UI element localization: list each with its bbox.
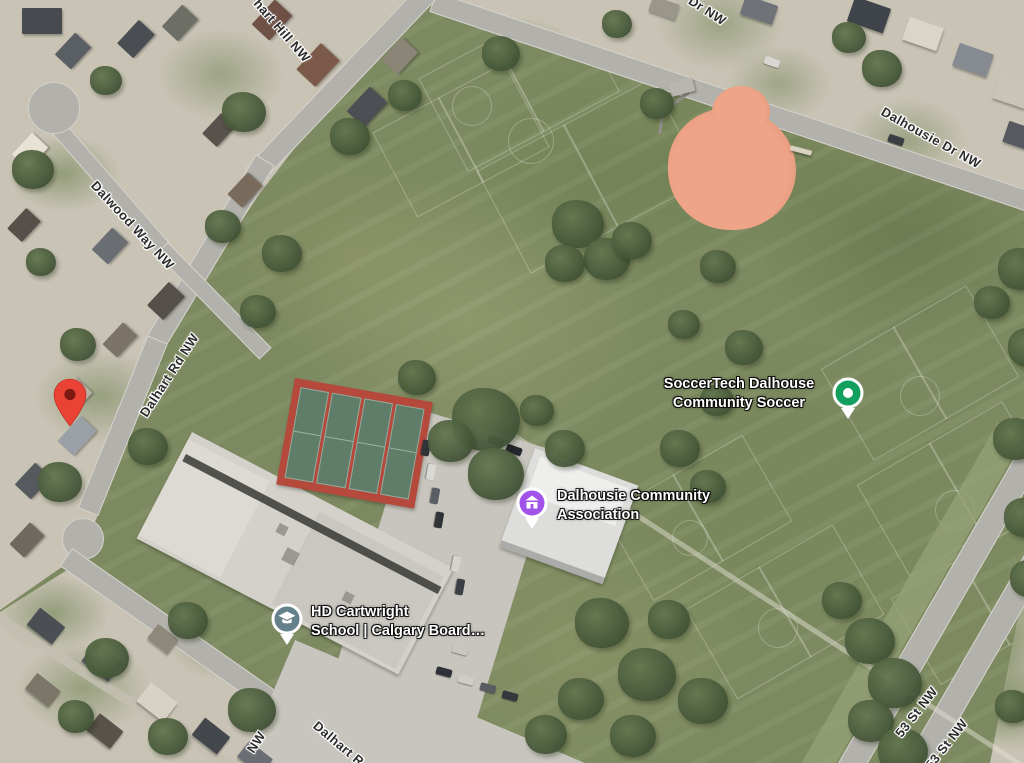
tree-canopy (38, 462, 82, 502)
poi-label-line1: Dalhousie Community (557, 487, 710, 506)
tree-canopy (428, 420, 474, 462)
poi-label-line2: Association (557, 506, 710, 525)
tree-canopy (525, 715, 567, 754)
community-building-pin[interactable] (515, 486, 549, 530)
tree-canopy (58, 700, 94, 733)
tree-canopy (90, 66, 122, 95)
soccer-center-circle (900, 376, 940, 416)
rooftop-unit (275, 523, 288, 536)
tree-canopy (862, 50, 902, 87)
satellite-map[interactable]: Dr NW Dalhousie Dr NW hart Hill NW Dalwo… (0, 0, 1024, 763)
tree-canopy (725, 330, 763, 365)
tree-canopy (602, 10, 632, 38)
red-map-pin[interactable] (53, 378, 87, 428)
tree-canopy (228, 688, 276, 732)
soccer-center-circle (508, 118, 554, 164)
tree-canopy (700, 250, 736, 283)
baseball-infield-top (712, 86, 770, 138)
tree-canopy (993, 418, 1024, 460)
tree-canopy (558, 678, 604, 720)
poi-label-school[interactable]: HD Cartwright School | Calgary Board… (311, 603, 485, 641)
tree-canopy (974, 286, 1010, 319)
tree-canopy (168, 602, 208, 639)
culdesac (28, 82, 80, 134)
house-roof (22, 8, 62, 34)
tree-canopy (60, 328, 96, 361)
tree-canopy (822, 582, 862, 619)
tree-canopy (128, 428, 168, 465)
tree-canopy (545, 245, 585, 282)
tree-canopy (660, 430, 700, 467)
tree-canopy (545, 430, 585, 467)
tree-canopy (832, 22, 866, 53)
tree-canopy (12, 150, 54, 189)
tree-canopy (398, 360, 436, 395)
tree-canopy (482, 36, 520, 71)
tree-canopy (995, 690, 1024, 723)
tree-canopy (668, 310, 700, 339)
tree-canopy (262, 235, 302, 272)
tree-canopy (205, 210, 241, 243)
tree-canopy (148, 718, 188, 755)
tree-canopy (575, 598, 629, 648)
tree-canopy (648, 600, 690, 639)
poi-label-line1: HD Cartwright (311, 603, 485, 622)
tree-canopy (612, 222, 652, 259)
poi-label-line2: School | Calgary Board… (311, 622, 485, 641)
tree-canopy (222, 92, 266, 132)
tree-canopy (618, 648, 676, 701)
soccer-center-circle (452, 86, 492, 126)
tree-canopy (330, 118, 370, 155)
tree-canopy (85, 638, 129, 678)
poi-label-line2: Community Soccer (646, 394, 832, 413)
school-graduation-cap-pin[interactable] (270, 602, 304, 646)
tree-canopy (520, 395, 554, 426)
tree-canopy (678, 678, 728, 724)
tree-canopy (26, 248, 56, 276)
poi-label-association[interactable]: Dalhousie Community Association (557, 487, 710, 525)
tree-canopy (845, 618, 895, 664)
tree-canopy (240, 295, 276, 328)
tree-canopy (388, 80, 422, 111)
tree-canopy (640, 88, 674, 119)
poi-label-soccertech[interactable]: SoccerTech Dalhouse Community Soccer (646, 375, 832, 413)
green-dot-pin[interactable] (831, 376, 865, 420)
poi-label-line1: SoccerTech Dalhouse (646, 375, 832, 394)
tree-canopy (610, 715, 656, 757)
